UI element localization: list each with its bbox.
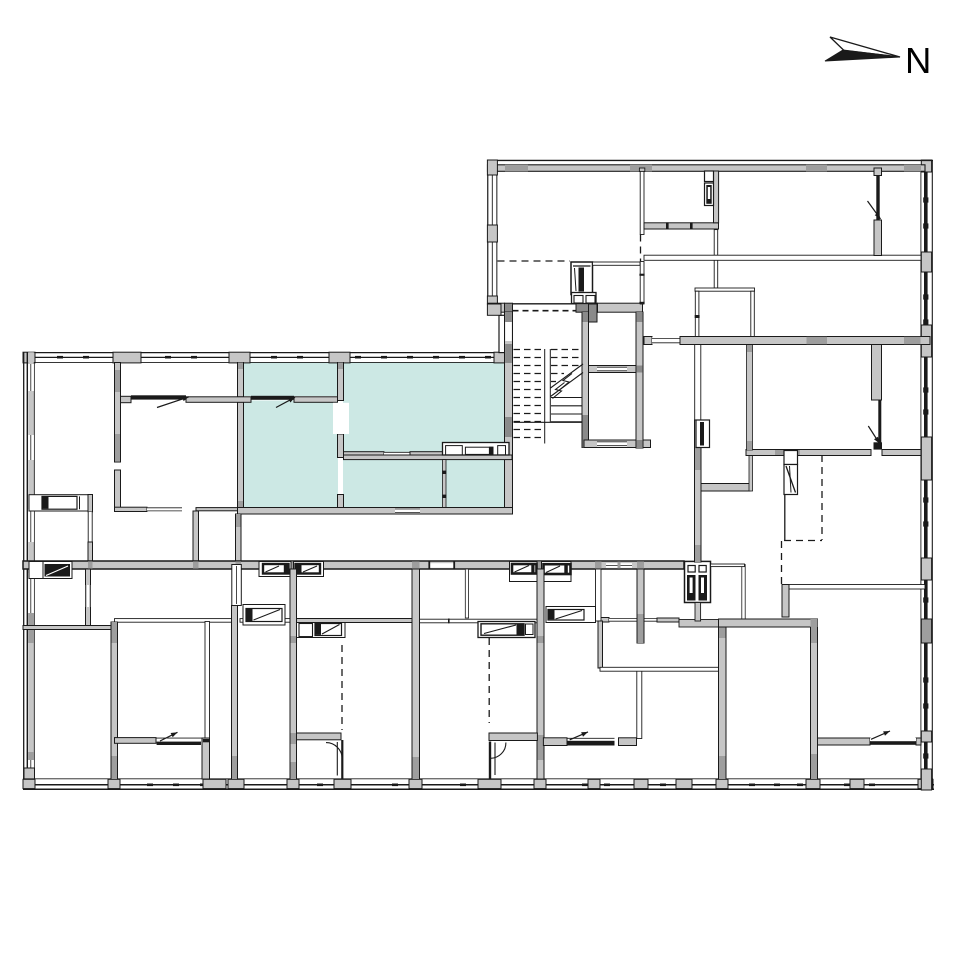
svg-text:N: N	[905, 40, 931, 81]
